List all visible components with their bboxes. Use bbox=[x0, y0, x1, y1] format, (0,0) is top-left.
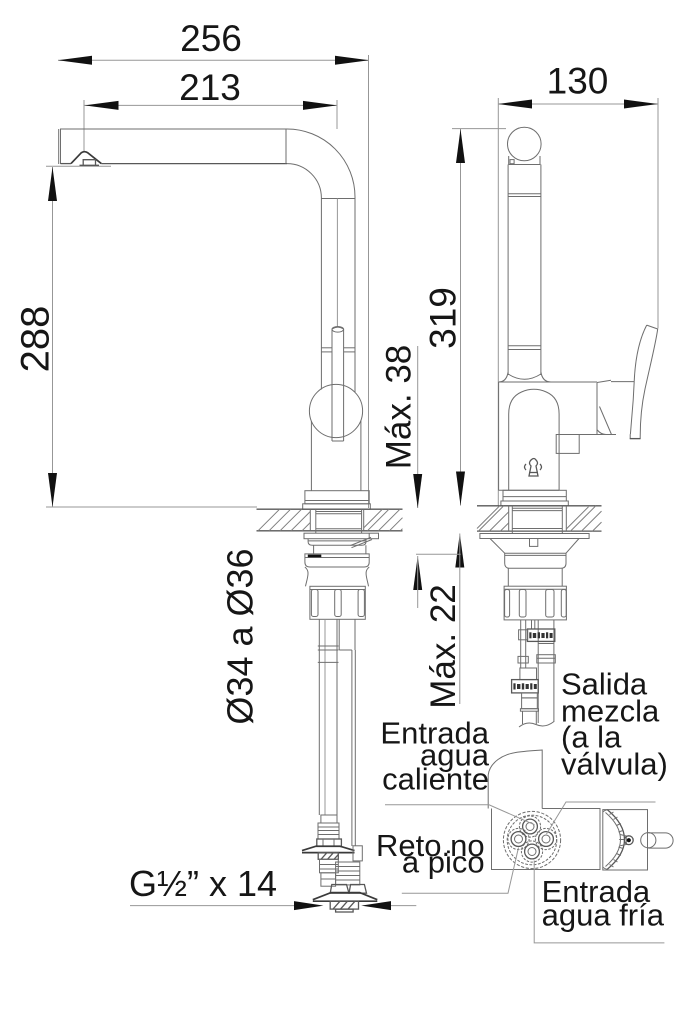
svg-text:213: 213 bbox=[179, 67, 241, 108]
svg-text:válvula): válvula) bbox=[561, 747, 668, 782]
svg-text:256: 256 bbox=[180, 18, 242, 59]
svg-text:caliente: caliente bbox=[382, 762, 489, 797]
svg-text:Máx. 22: Máx. 22 bbox=[424, 584, 463, 709]
svg-text:a pico: a pico bbox=[402, 845, 485, 880]
svg-text:Máx. 38: Máx. 38 bbox=[380, 345, 419, 470]
svg-text:130: 130 bbox=[547, 61, 609, 102]
svg-text:319: 319 bbox=[423, 287, 464, 349]
svg-text:G½” x 14: G½” x 14 bbox=[129, 863, 277, 904]
svg-text:288: 288 bbox=[14, 306, 58, 373]
svg-text:agua fría: agua fría bbox=[542, 898, 665, 933]
svg-text:Ø34 a Ø36: Ø34 a Ø36 bbox=[220, 548, 261, 724]
